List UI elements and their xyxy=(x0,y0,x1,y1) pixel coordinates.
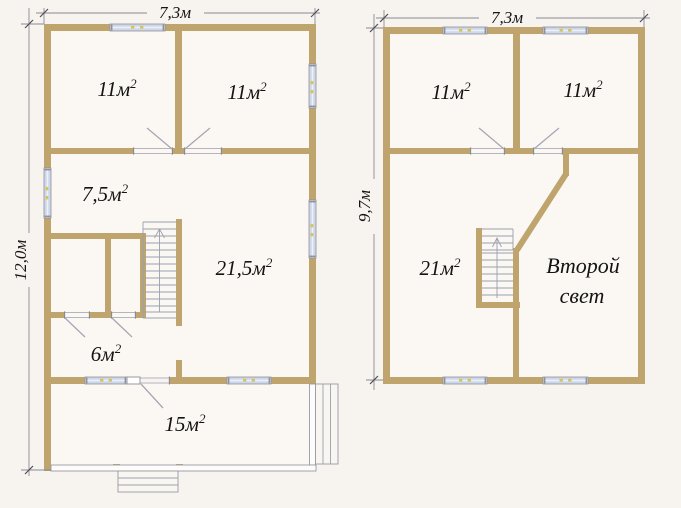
floor2-plan: 7,3м 9,7м 11м2 11м2 21м2 Второй свет xyxy=(355,8,650,390)
floor2-width-dim: 7,3м xyxy=(491,8,523,27)
void-label-line1: Второй xyxy=(546,253,620,278)
room-label: 21,5м2 xyxy=(216,255,273,280)
window-f2-top-left xyxy=(443,27,487,34)
window-f2-top-right xyxy=(543,27,588,34)
floor1-height-dim: 12,0м xyxy=(11,240,30,281)
floor1-width-dim: 7,3м xyxy=(159,3,191,22)
void-label-line2: свет xyxy=(560,283,605,308)
window-f1-veranda-left xyxy=(85,377,127,384)
window-f1-top xyxy=(110,24,165,31)
floor2-height-dim: 9,7м xyxy=(355,190,374,222)
window-f1-right-upper xyxy=(309,64,316,108)
window-f2-bottom-right xyxy=(543,377,588,384)
window-f1-right-lower xyxy=(309,200,316,258)
house-floor-plans: 7,3м 12,0м 11м2 11м2 7,5м2 21,5м2 6м2 15… xyxy=(0,0,681,508)
window-f2-bottom-left xyxy=(443,377,487,384)
window-f1-left xyxy=(44,168,51,218)
floor1-plan: 7,3м 12,0м 11м2 11м2 7,5м2 21,5м2 6м2 15… xyxy=(11,3,338,492)
floor-plan-canvas: 7,3м 12,0м 11м2 11м2 7,5м2 21,5м2 6м2 15… xyxy=(0,0,681,508)
window-f1-veranda-right xyxy=(227,377,271,384)
